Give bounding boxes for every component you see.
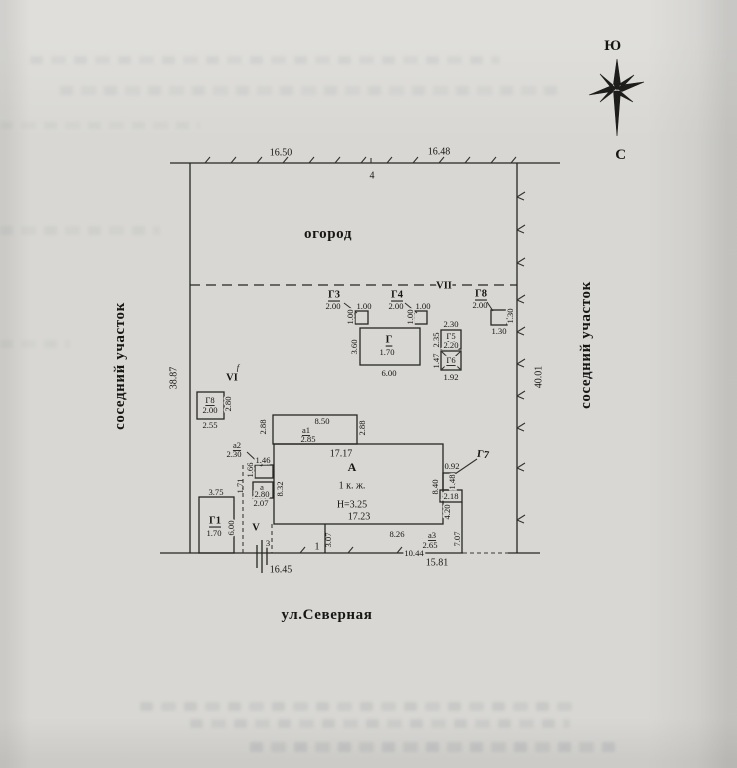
garden-label: огород — [304, 226, 352, 242]
shed-g5-area: 2.20 — [443, 340, 458, 350]
bay-g7-height: 1.48 — [447, 474, 457, 489]
zone-vi-mark: f — [237, 362, 241, 372]
annex-a2-width: 1.46 — [255, 455, 271, 465]
zone-v-label: V — [252, 523, 260, 534]
shed-g3-width: 1.00 — [356, 301, 371, 311]
terrace-left-dim: 3.07 — [323, 532, 333, 548]
shed-g8-fence-dist: 2.00 — [472, 300, 487, 310]
bay-g7-label: Г7 — [476, 449, 489, 462]
annex-a1-right-dim: 2.88 — [357, 420, 367, 435]
shed-g3-dist: 2.00 — [325, 301, 340, 311]
compass-south-label: Ю — [604, 38, 622, 54]
shed-g: Г 1.70 3.60 6.00 — [349, 328, 420, 378]
neighbor-plot-left-label: соседний участок — [112, 302, 128, 430]
compass-north-label: С — [615, 147, 626, 163]
dim-bottom-left: 16.45 — [270, 565, 293, 576]
terrace-right-dim: 7.07 — [452, 531, 462, 547]
house-annex-a: a 2.80 2.07 — [253, 482, 273, 508]
annex-a2-height: 1.66 — [245, 462, 255, 478]
zone-vi-label: VI — [226, 373, 238, 384]
shed-g5-width: 2.30 — [443, 319, 458, 329]
shed-g8-fence-width: 1.30 — [491, 326, 506, 336]
shed-g1-label: Г1 — [209, 516, 221, 527]
shed-g8-left-height: 2.80 — [223, 396, 233, 411]
boundary-right-ticks — [517, 192, 525, 523]
point-number-4: 4 — [370, 171, 375, 182]
terrace-a3-label: a3 — [428, 530, 436, 540]
shed-g4-dist: 2.00 — [388, 301, 403, 311]
bay-g7-side-dim: 4.20 — [442, 504, 452, 519]
shed-g5: 2.30 2.35 Г5 2.20 — [431, 319, 461, 350]
house-litera: А — [348, 460, 357, 474]
house-bay-g7: Г7 0.92 1.48 2.18 4.20 — [440, 449, 490, 520]
house-annex-a2: a2 2.30 1.46 1.66 1.71 — [226, 440, 273, 494]
annex-a1-left-dim: 2.88 — [258, 419, 268, 434]
bay-g7-width: 0.92 — [444, 461, 459, 471]
compass-rose-icon — [589, 59, 644, 136]
gate-point-number: 3 — [266, 538, 270, 548]
shed-g4-label: Г4 — [391, 290, 404, 301]
dim-top-right: 16.48 — [428, 147, 451, 158]
dim-bottom-right: 15.81 — [426, 558, 449, 569]
dim-left-boundary: 38.87 — [169, 367, 180, 390]
annex-a1-top-dim: 8.50 — [314, 416, 329, 426]
shed-g8-fence-label: Г8 — [475, 289, 487, 300]
shed-g6-width: 1.92 — [443, 372, 458, 382]
house-left-dim: 8.32 — [275, 481, 285, 496]
house-right-dim: 8.40 — [430, 479, 440, 494]
street-label: ул.Северная — [282, 607, 373, 623]
annex-a-width: 2.07 — [253, 498, 269, 508]
house-height: Н=3.25 — [337, 500, 367, 511]
shed-g6-height: 1.47 — [431, 353, 441, 369]
annex-a2-dist: 2.30 — [226, 449, 241, 459]
shed-g3-height: 1.00 — [345, 309, 355, 324]
terrace-a3-num: 2.65 — [422, 540, 437, 550]
site-plan-drawing: Ю С 16.50 16.48 4 38.87 40.01 16.45 15.8… — [0, 0, 737, 768]
shed-g1-height: 6.00 — [226, 520, 236, 535]
house-top-dim: 17.17 — [330, 449, 353, 460]
shed-g3-label: Г3 — [328, 290, 340, 301]
shed-g-label: Г — [386, 335, 393, 346]
terrace-top-dim: 8.26 — [389, 529, 405, 539]
shed-g5-height: 2.35 — [431, 332, 441, 347]
annex-a1-area: 2.85 — [300, 434, 315, 444]
dim-right-boundary: 40.01 — [534, 366, 545, 389]
shed-g1: 3.75 Г1 1.70 6.00 — [199, 487, 236, 553]
shed-g8-left-label: Г8 — [205, 395, 214, 405]
bay-g7-ext-dim: 2.18 — [443, 491, 458, 501]
shed-g4-width: 1.00 — [415, 301, 430, 311]
boundary-top-ticks — [205, 157, 516, 163]
scanned-site-plan-page: { "compass": { "south": "Ю", "north": "С… — [0, 0, 737, 768]
shed-g4: Г4 2.00 1.00 1.00 — [388, 290, 430, 325]
shed-g4-height: 1.00 — [405, 309, 415, 324]
shed-g8-fence-height: 1.30 — [505, 308, 515, 323]
shed-g1-area: 1.70 — [206, 528, 221, 538]
shed-g6-label: Г6 — [446, 355, 456, 365]
house-bottom-dim: 17.23 — [348, 512, 371, 523]
fence-point-number: 1 — [315, 542, 320, 553]
shed-g8-left: Г8 2.00 2.80 2.55 — [197, 392, 233, 430]
house-storeys: 1 к. ж. — [339, 481, 366, 492]
house-main: 17.17 А 1 к. ж. Н=3.25 17.23 8.32 8.40 — [274, 444, 443, 524]
shed-g1-width: 3.75 — [208, 487, 223, 497]
shed-g-height: 3.60 — [349, 339, 359, 354]
shed-g8-left-width: 2.55 — [202, 420, 217, 430]
house-annex-a1: 8.50 a1 2.85 2.88 2.88 — [258, 415, 367, 444]
shed-g3: Г3 2.00 1.00 1.00 — [325, 290, 371, 325]
terrace-bottom-dim: 10.44 — [404, 548, 424, 558]
garden-line-roman-label: VII — [436, 281, 452, 292]
shed-g8-fence: Г8 2.00 1.30 1.30 — [472, 289, 515, 337]
shed-g6: Г6 1.47 1.92 — [431, 351, 461, 382]
dim-top-left: 16.50 — [270, 148, 293, 159]
shed-g-width: 6.00 — [381, 368, 396, 378]
shed-g8-left-area: 2.00 — [202, 405, 217, 415]
shed-g-area: 1.70 — [379, 347, 394, 357]
neighbor-plot-right-label: соседний участок — [578, 281, 594, 409]
